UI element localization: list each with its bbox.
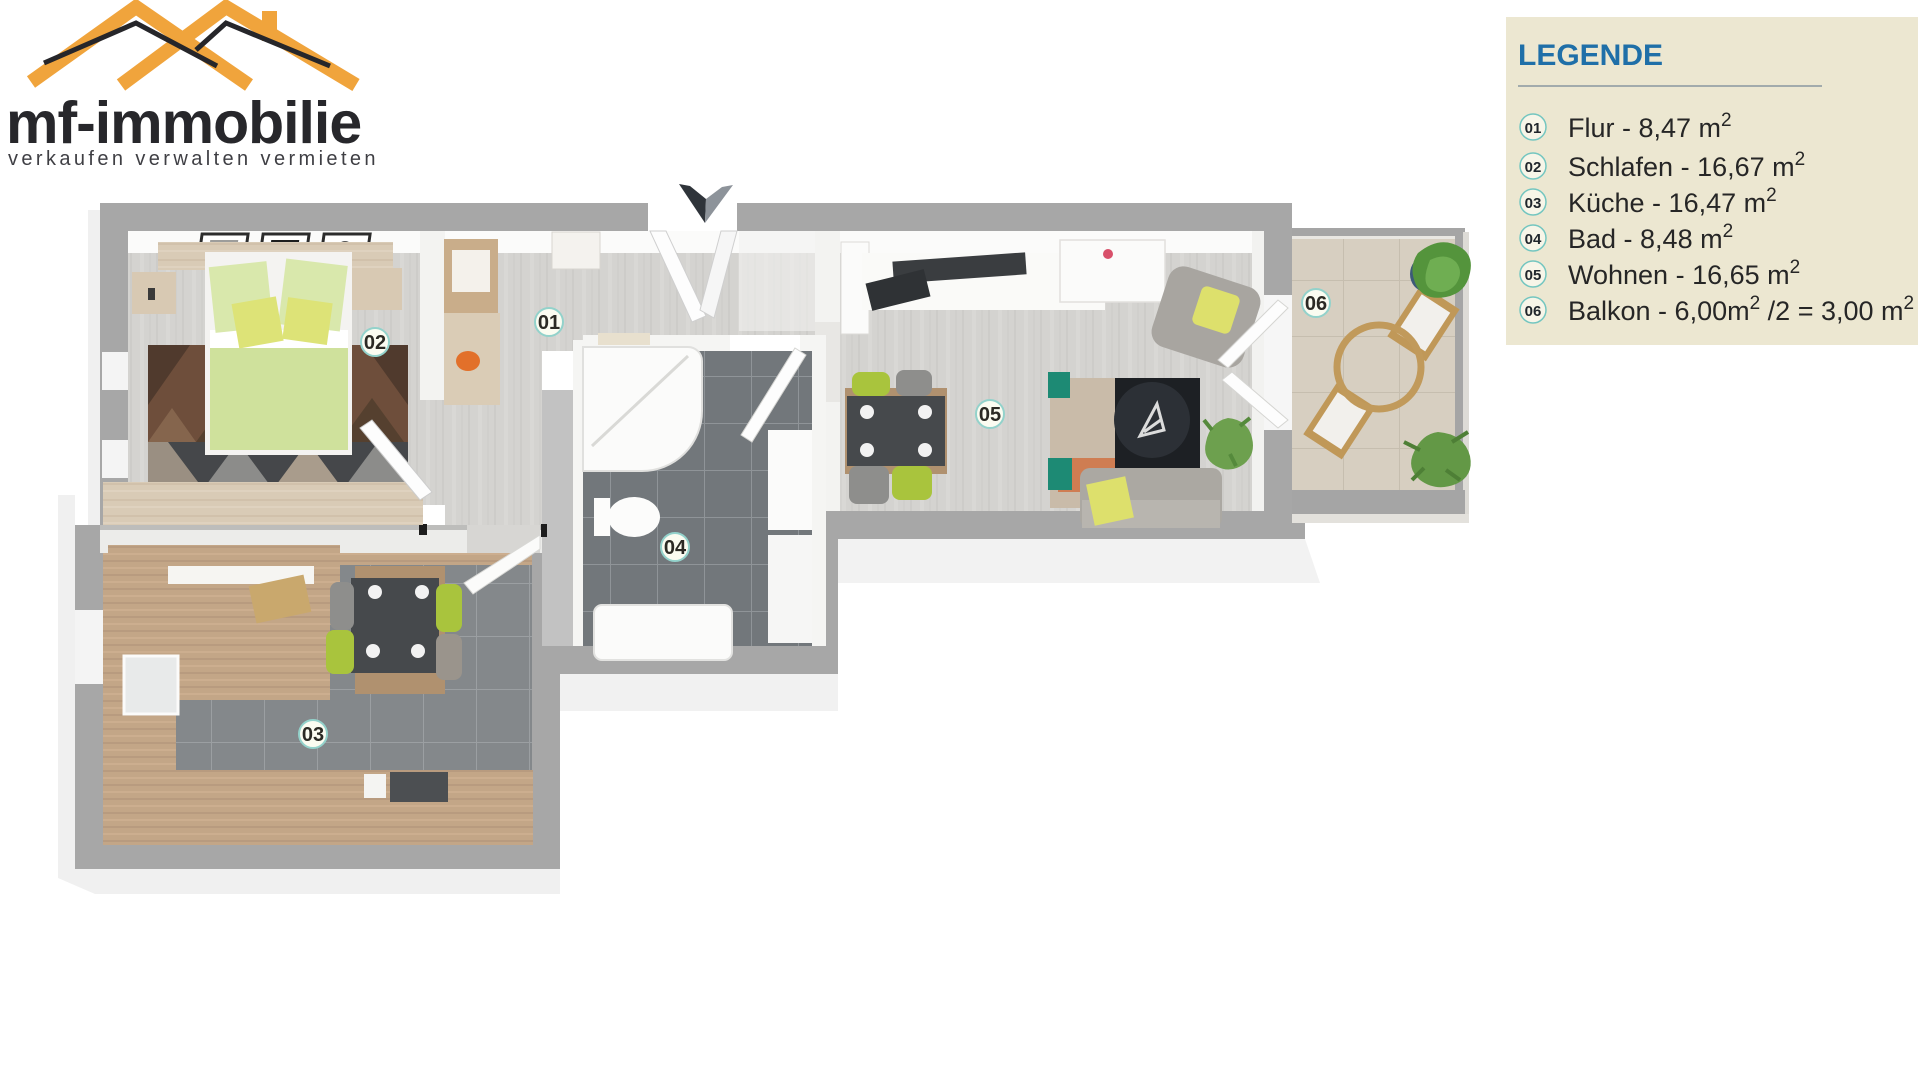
svg-text:02: 02 <box>364 332 386 354</box>
svg-text:01: 01 <box>538 312 560 334</box>
svg-text:Bad - 8,48 m2: Bad - 8,48 m2 <box>1568 221 1733 254</box>
svg-text:verkaufen verwalten vermieten: verkaufen verwalten vermieten <box>8 148 379 170</box>
svg-text:03: 03 <box>302 724 324 746</box>
svg-text:Flur - 8,47 m2: Flur - 8,47 m2 <box>1568 110 1732 143</box>
svg-text:03: 03 <box>1525 195 1542 212</box>
svg-text:02: 02 <box>1525 159 1542 176</box>
svg-text:06: 06 <box>1305 293 1327 315</box>
svg-text:05: 05 <box>979 404 1001 426</box>
svg-text:Küche - 16,47 m2: Küche - 16,47 m2 <box>1568 185 1777 218</box>
svg-text:01: 01 <box>1525 120 1542 137</box>
svg-text:06: 06 <box>1525 303 1542 320</box>
svg-text:04: 04 <box>1525 231 1542 248</box>
svg-text:Wohnen - 16,65 m2: Wohnen - 16,65 m2 <box>1568 257 1800 290</box>
svg-text:05: 05 <box>1525 267 1542 284</box>
svg-text:04: 04 <box>664 537 687 559</box>
svg-text:mf-immobilie: mf-immobilie <box>6 90 361 156</box>
svg-text:LEGENDE: LEGENDE <box>1518 39 1663 72</box>
svg-text:Schlafen - 16,67 m2: Schlafen - 16,67 m2 <box>1568 149 1805 182</box>
svg-text:Balkon - 6,00m2 /2 = 3,00 m2: Balkon - 6,00m2 /2 = 3,00 m2 <box>1568 293 1914 326</box>
